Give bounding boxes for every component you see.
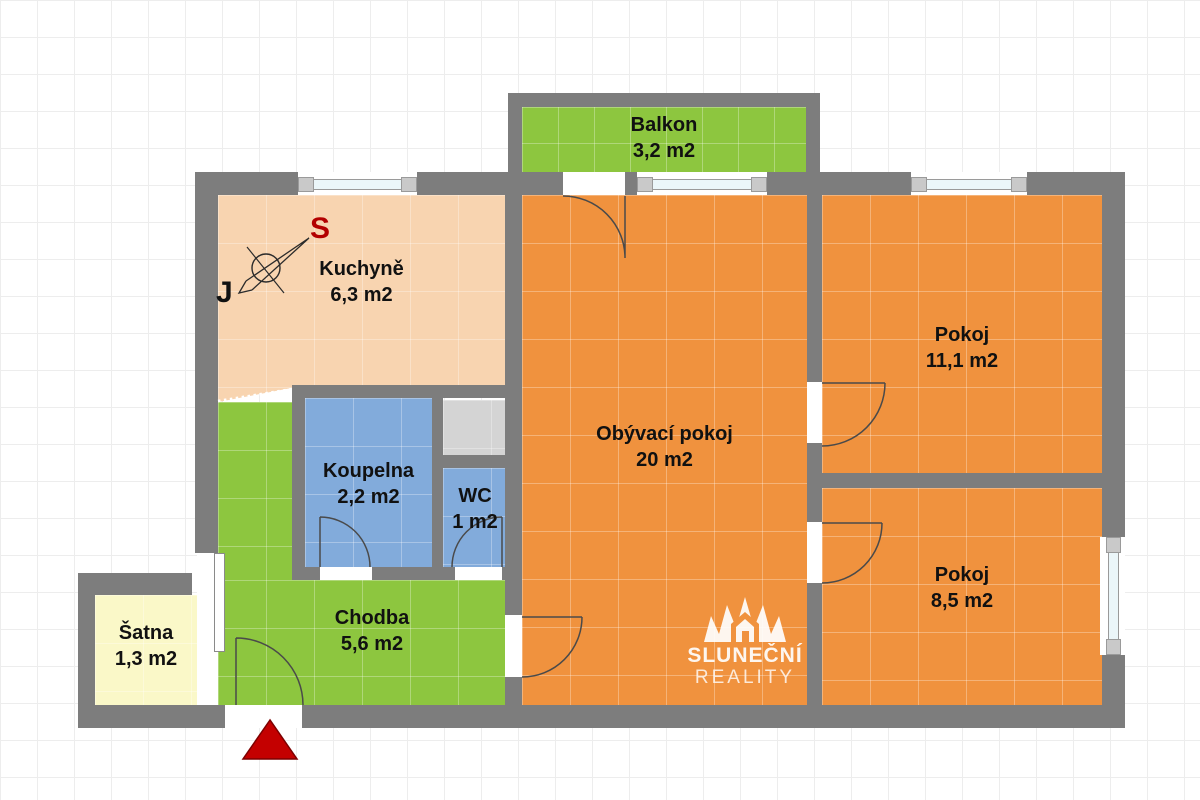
- wall-pokoj-divider: [822, 473, 1102, 488]
- label-chodba: Chodba 5,6 m2: [292, 605, 452, 657]
- koupelna-door-threshold: [320, 567, 372, 580]
- balkon-window: [637, 172, 767, 195]
- pokoj-2-window: [1100, 537, 1125, 655]
- label-wc: WC 1 m2: [443, 483, 507, 535]
- living-door-opening: [505, 615, 522, 677]
- wall-satna-top: [78, 573, 192, 595]
- label-balkon: Balkon 3,2 m2: [522, 112, 806, 164]
- window-cap: [1106, 537, 1121, 553]
- balcony-door-opening: [563, 172, 625, 195]
- label-pokoj-1: Pokoj 11,1 m2: [822, 322, 1102, 374]
- watermark-line2: REALITY: [655, 667, 835, 689]
- window-cap: [401, 177, 417, 192]
- window-pane: [300, 179, 415, 190]
- compass-north-label: S: [310, 214, 330, 244]
- window-cap: [298, 177, 314, 192]
- floor-plan: Balkon 3,2 m2 Kuchyně 6,3 m2 Obývací pok…: [0, 0, 1200, 800]
- pokoj-1-door-opening: [807, 382, 822, 443]
- wall-bath-top: [292, 385, 505, 398]
- window-cap: [751, 177, 767, 192]
- watermark-line1: SLUNEČNÍ: [655, 644, 835, 668]
- window-cap: [637, 177, 653, 192]
- window-pane: [639, 179, 765, 190]
- pokoj-1-window: [911, 172, 1027, 195]
- label-pokoj-2: Pokoj 8,5 m2: [822, 562, 1102, 614]
- satna-door-leaf: [214, 553, 225, 652]
- wall-balcony-right: [806, 93, 820, 172]
- entrance-door-opening: [225, 705, 302, 728]
- label-koupelna: Koupelna 2,2 m2: [280, 458, 457, 510]
- kuchyne-window: [298, 172, 417, 195]
- window-cap: [911, 177, 927, 192]
- label-obyvaci-pokoj: Obývací pokoj 20 m2: [522, 421, 807, 473]
- window-cap: [1011, 177, 1027, 192]
- window-cap: [1106, 639, 1121, 655]
- window-pane: [913, 179, 1025, 190]
- utility-shaft: [443, 400, 507, 455]
- window-pane: [1108, 539, 1119, 653]
- wall-balcony-top: [508, 93, 820, 107]
- wall-left: [195, 172, 218, 553]
- wall-living-right: [807, 195, 822, 705]
- wc-door-threshold: [455, 567, 502, 580]
- compass-south-label: J: [216, 278, 233, 308]
- pokoj-2-door-opening: [807, 522, 822, 583]
- label-kuchyne: Kuchyně 6,3 m2: [218, 256, 505, 308]
- label-satna: Šatna 1,3 m2: [88, 620, 204, 672]
